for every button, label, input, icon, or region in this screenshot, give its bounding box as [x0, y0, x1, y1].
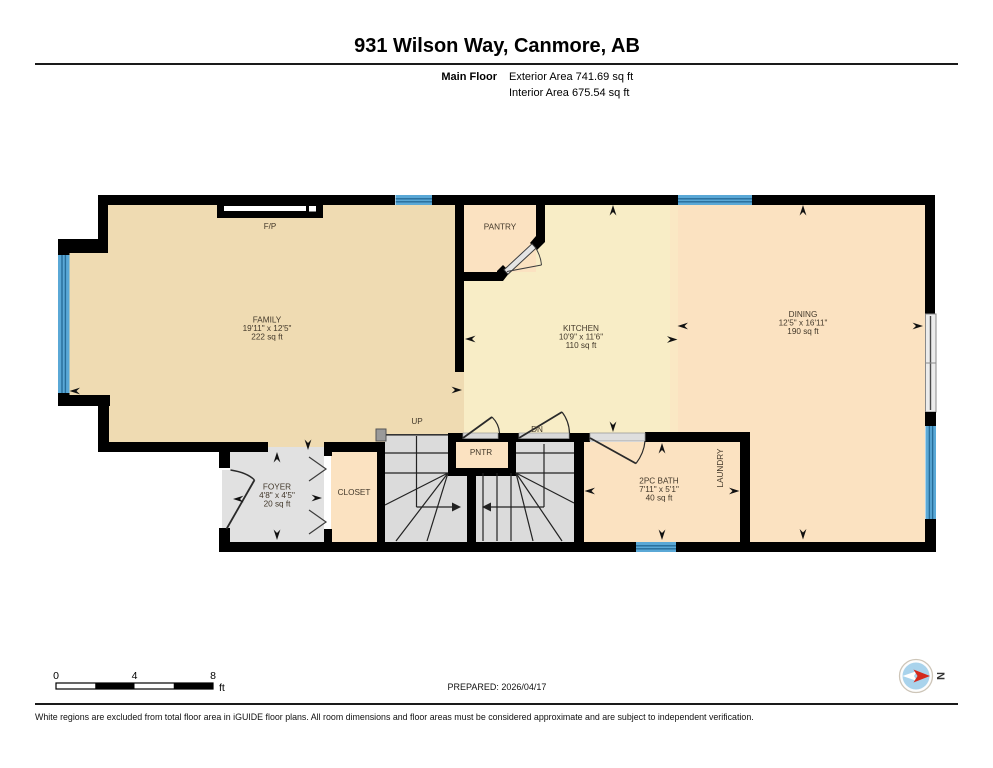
svg-text:ft: ft	[219, 682, 225, 694]
svg-text:N: N	[934, 672, 946, 680]
svg-text:DN: DN	[531, 425, 543, 434]
svg-text:931 Wilson Way, Canmore, AB: 931 Wilson Way, Canmore, AB	[354, 35, 640, 57]
svg-text:CLOSET: CLOSET	[338, 488, 371, 497]
svg-text:190 sq ft: 190 sq ft	[787, 327, 819, 336]
svg-text:PREPARED: 2026/04/17: PREPARED: 2026/04/17	[448, 682, 547, 692]
svg-text:Interior Area 675.54 sq ft: Interior Area 675.54 sq ft	[509, 87, 629, 99]
svg-text:PNTR: PNTR	[470, 448, 492, 457]
svg-text:LAUNDRY: LAUNDRY	[716, 448, 725, 488]
svg-text:Main Floor: Main Floor	[441, 71, 497, 83]
svg-text:222 sq ft: 222 sq ft	[251, 333, 283, 342]
svg-text:4: 4	[132, 670, 138, 682]
svg-text:40 sq ft: 40 sq ft	[646, 494, 674, 503]
svg-text:F/P: F/P	[264, 222, 276, 231]
svg-text:PANTRY: PANTRY	[484, 223, 517, 232]
svg-text:0: 0	[53, 670, 59, 682]
svg-text:Exterior Area 741.69 sq ft: Exterior Area 741.69 sq ft	[509, 71, 633, 83]
svg-text:UP: UP	[411, 417, 423, 426]
svg-text:20 sq ft: 20 sq ft	[264, 500, 292, 509]
svg-text:110 sq ft: 110 sq ft	[566, 341, 598, 350]
svg-text:White regions are excluded fro: White regions are excluded from total fl…	[35, 712, 754, 722]
svg-text:8: 8	[210, 670, 216, 682]
